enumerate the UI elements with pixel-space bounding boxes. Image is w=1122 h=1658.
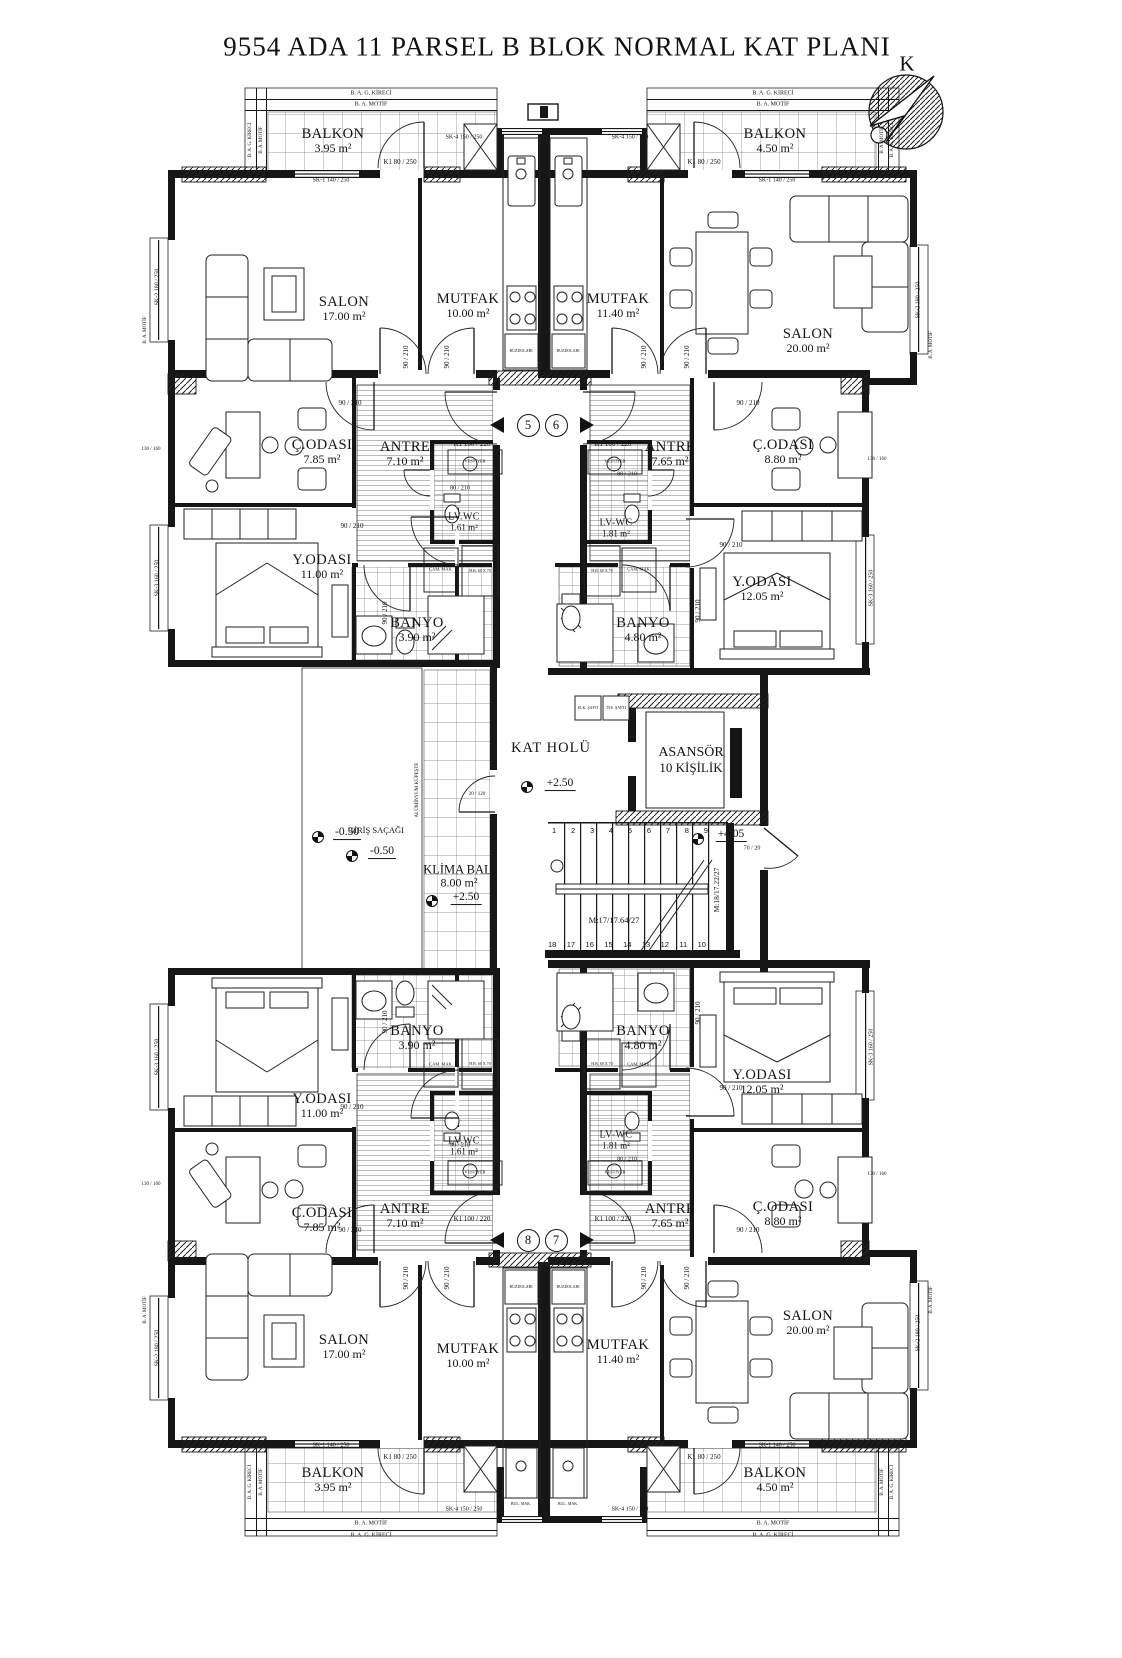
finish-tag-motif: B. A. MOTİF bbox=[929, 1286, 935, 1313]
finish-row-motif: B. A. MOTİF bbox=[757, 1521, 790, 1528]
window-tag-sk1: SK-1 140 / 250 bbox=[759, 178, 796, 185]
door-tag-wc: 80 / 210 bbox=[617, 472, 637, 479]
finish-row-kireci: B. A. G. KİRECİ bbox=[752, 1533, 793, 1540]
door-tag: 90 / 210 bbox=[444, 346, 452, 369]
window-tag-sk3: SK-3 160 / 250 bbox=[155, 560, 162, 597]
door-tag: 90 / 210 bbox=[720, 542, 743, 550]
room-label-salon-bl: SALON17.00 m² bbox=[319, 1332, 369, 1362]
room-label-balkon-tl: BALKON3.95 m² bbox=[302, 126, 365, 156]
door-tag: 90 / 210 bbox=[641, 346, 649, 369]
room-label-banyo-tl: BANYO3.90 m² bbox=[390, 615, 444, 645]
tes-shaft-label: TES. ŞAFTI bbox=[606, 706, 626, 710]
stair-number: 5 bbox=[628, 826, 632, 835]
finish-tag-kireci: B. A. G. KİRECİ bbox=[248, 1465, 254, 1499]
vestiyer-tag: VESTİYER bbox=[464, 460, 485, 465]
stair-number: 13 bbox=[642, 940, 650, 949]
north-label: K bbox=[899, 52, 914, 77]
window-tag-sk1: SK-1 140 / 250 bbox=[313, 178, 350, 185]
unit-number-7: 7 bbox=[545, 1229, 568, 1252]
vestiyer-tag: VESTİYER bbox=[464, 1171, 485, 1176]
unit-arrow-left-top bbox=[490, 417, 504, 433]
door-tag-wc: 80 / 210 bbox=[450, 486, 470, 493]
finish-tag-kireci: B. A. G. KİRECİ bbox=[890, 123, 896, 157]
window-tag-sk3: SK-3 160 / 250 bbox=[869, 1029, 876, 1066]
entry-door-tag: K1 100 / 220 bbox=[454, 1216, 491, 1224]
room-label-banyo-br: BANYO4.80 m² bbox=[616, 1023, 670, 1053]
entry-door-tag: K1 100 / 220 bbox=[595, 441, 632, 449]
room-label-lvwc-br: LV-WC1.81 m² bbox=[600, 1129, 633, 1150]
sill-dim: 130 / 160 bbox=[142, 447, 161, 453]
finish-row-motif: B. A. MOTİF bbox=[757, 102, 790, 109]
hb-tag: H.B. 60 X 70 bbox=[587, 1062, 617, 1066]
window-tag-sk4: SK-4 150 / 250 bbox=[446, 135, 483, 142]
stair-number: 17 bbox=[567, 940, 575, 949]
floor-plan-sheet: 9554 ADA 11 PARSEL B BLOK NORMAL KAT PLA… bbox=[0, 0, 1122, 1658]
vestiyer-tag: VESTİYER bbox=[604, 1171, 625, 1176]
door-tag: 90 / 210 bbox=[737, 400, 760, 408]
hb-tag: H.B. 60 X 70 bbox=[465, 1062, 495, 1066]
level-giris-2: -0.50 bbox=[368, 845, 396, 859]
level-klima: +2.50 bbox=[451, 891, 482, 905]
stair-number: 14 bbox=[623, 940, 631, 949]
level-hall: +2.50 bbox=[545, 777, 576, 791]
camasir-makinesi-tag: ÇAM. MAK. bbox=[429, 568, 453, 573]
room-label-banyo-tr: BANYO4.80 m² bbox=[616, 615, 670, 645]
finish-tag-motif: B. A. MOTİF bbox=[880, 126, 886, 153]
door-tag: 90 / 210 bbox=[382, 602, 390, 625]
finish-tag-motif: B. A. MOTİF bbox=[143, 316, 149, 343]
sill-dim: 130 / 160 bbox=[142, 1182, 161, 1188]
finish-row-motif: B. A. MOTİF bbox=[355, 1521, 388, 1528]
window-tag-sk3: SK-3 160 / 250 bbox=[869, 570, 876, 607]
room-label-mutfak-tl: MUTFAK10.00 m² bbox=[437, 291, 500, 321]
finish-row-kireci: B. A. G. KİRECİ bbox=[350, 91, 391, 98]
finish-tag-motif: B. A. MOTİF bbox=[929, 331, 935, 358]
room-label-salon-tl: SALON17.00 m² bbox=[319, 294, 369, 324]
balcony-door-tag: K1 80 / 250 bbox=[383, 159, 416, 167]
stair-number: 12 bbox=[661, 940, 669, 949]
room-label-balkon-br: BALKON4.50 m² bbox=[744, 1465, 807, 1495]
vestiyer-tag: VESTİYER bbox=[604, 460, 625, 465]
window-tag-sk4: SK-4 150 / 250 bbox=[446, 1507, 483, 1514]
klima-bal-label: KLİMA BAL.8.00 m² bbox=[423, 862, 495, 889]
window-tag-sk4: SK-4 150 / 250 bbox=[612, 135, 649, 142]
window-tag-sk1: SK-1 140 / 250 bbox=[313, 1443, 350, 1450]
stair-m18-label: M:18/17.22/27 bbox=[713, 868, 721, 913]
door-tag: 90 / 210 bbox=[444, 1267, 452, 1290]
window-tag-sk2: SK-2 180 / 250 bbox=[916, 1315, 923, 1352]
door-tag: 90 / 210 bbox=[339, 400, 362, 408]
door-tag: 90 / 210 bbox=[720, 1085, 743, 1093]
room-label-antre-tl: ANTRE7.10 m² bbox=[380, 439, 430, 469]
stair-number: 3 bbox=[590, 826, 594, 835]
door-tag: 90 / 210 bbox=[684, 346, 692, 369]
room-label-yodasi-tr: Y.ODASI12.05 m² bbox=[732, 574, 791, 604]
door-tag: 90 / 210 bbox=[641, 1267, 649, 1290]
door-tag: 90 / 210 bbox=[382, 1011, 390, 1034]
buzdolabi-tag: BUZDOLABI bbox=[509, 349, 532, 353]
room-label-balkon-tr: BALKON4.50 m² bbox=[744, 126, 807, 156]
door-tag: 90 / 210 bbox=[737, 1227, 760, 1235]
room-label-antre-tr: ANTRE7.65 m² bbox=[645, 439, 695, 469]
stair-number: 16 bbox=[586, 940, 594, 949]
window-tag-sk3: SK-3 160 / 250 bbox=[155, 1039, 162, 1076]
finish-tag-motif: B. A. MOTİF bbox=[259, 126, 265, 153]
bulasik-makinesi-tag: BUL. MAK. bbox=[511, 1502, 531, 1506]
camasir-makinesi-tag: ÇAM. MAK. bbox=[627, 1063, 651, 1068]
window-tag-sk4: SK-4 150 / 250 bbox=[612, 1507, 649, 1514]
stair-number: 10 bbox=[698, 940, 706, 949]
balcony-door-tag: K1 80 / 250 bbox=[687, 1454, 720, 1462]
door-tag: 90 / 210 bbox=[684, 1267, 692, 1290]
buzdolabi-tag: BUZDOLABI bbox=[556, 1285, 579, 1289]
room-label-mutfak-br: MUTFAK11.40 m² bbox=[587, 1337, 650, 1367]
level-landing: +4.05 bbox=[716, 828, 747, 842]
finish-tag-motif: B. A. MOTİF bbox=[259, 1468, 265, 1495]
window-tag-sk2: SK-2 180 / 250 bbox=[155, 269, 162, 306]
balcony-door-tag: K1 80 / 250 bbox=[383, 1454, 416, 1462]
room-label-banyo-bl: BANYO3.90 m² bbox=[390, 1023, 444, 1053]
asansor-label: ASANSÖR10 KİŞİLİK bbox=[658, 745, 723, 775]
hb-tag: H.B. 60 X 70 bbox=[465, 569, 495, 573]
finish-tag-kireci: B. A. G. KİRECİ bbox=[890, 1465, 896, 1499]
entry-door-tag: K1 100 / 220 bbox=[595, 1216, 632, 1224]
stair-number: 7 bbox=[666, 826, 670, 835]
door-tag: 90 / 210 bbox=[695, 600, 703, 623]
door-tag: 90 / 210 bbox=[341, 1104, 364, 1112]
unit-number-6: 6 bbox=[545, 414, 568, 437]
bulasik-makinesi-tag: BUL. MAK. bbox=[558, 1502, 578, 1506]
stair-numbers-top: 123456789 bbox=[552, 826, 708, 835]
buzdolabi-tag: BUZDOLABI bbox=[509, 1285, 532, 1289]
room-label-mutfak-bl: MUTFAK10.00 m² bbox=[437, 1341, 500, 1371]
window-tag-sk1: SK-1 140 / 250 bbox=[759, 1443, 796, 1450]
stair-numbers-bottom: 181716151413121110 bbox=[548, 940, 706, 949]
room-label-salon-tr: SALON20.00 m² bbox=[783, 326, 833, 356]
room-label-antre-br: ANTRE7.65 m² bbox=[645, 1201, 695, 1231]
room-label-codasi-tl: Ç.ODASI7.85 m² bbox=[292, 437, 352, 467]
entry-door-tag: K1 100 / 220 bbox=[454, 441, 491, 449]
stair-dim-label: 70 / 20 bbox=[744, 846, 761, 853]
sill-dim: 130 / 160 bbox=[868, 457, 887, 463]
unit-number-5: 5 bbox=[517, 414, 540, 437]
stair-number: 1 bbox=[552, 826, 556, 835]
room-label-lvwc-tl: LV.WC1.61 m² bbox=[448, 511, 480, 532]
door-tag: 90 / 210 bbox=[341, 523, 364, 531]
camasir-makinesi-tag: ÇAM. MAK. bbox=[429, 1063, 453, 1068]
room-label-salon-br: SALON20.00 m² bbox=[783, 1308, 833, 1338]
window-tag-sk2: SK-2 180 / 250 bbox=[155, 1330, 162, 1367]
sheet-title: 9554 ADA 11 PARSEL B BLOK NORMAL KAT PLA… bbox=[223, 32, 891, 63]
unit-arrow-left-bottom bbox=[490, 1232, 504, 1248]
room-label-balkon-bl: BALKON3.95 m² bbox=[302, 1465, 365, 1495]
room-label-codasi-tr: Ç.ODASI8.80 m² bbox=[753, 437, 813, 467]
room-label-mutfak-tr: MUTFAK11.40 m² bbox=[587, 291, 650, 321]
stair-number: 8 bbox=[685, 826, 689, 835]
stair-number: 6 bbox=[647, 826, 651, 835]
room-label-lvwc-tr: LV-WC1.81 m² bbox=[600, 517, 633, 538]
sill-dim: 130 / 160 bbox=[868, 1172, 887, 1178]
room-label-yodasi-tl: Y.ODASI11.00 m² bbox=[292, 552, 351, 582]
door-tag-wc: 80 / 210 bbox=[617, 1157, 637, 1164]
finish-tag-motif: B. A. MOTİF bbox=[880, 1468, 886, 1495]
railing-note: ALÜMİNYUM KÜPEŞTE bbox=[415, 763, 421, 818]
unit-number-8: 8 bbox=[517, 1229, 540, 1252]
camasir-makinesi-tag: ÇAM. MAK. bbox=[627, 568, 651, 573]
unit-arrow-right-top bbox=[580, 417, 594, 433]
finish-tag-motif: B. A. MOTİF bbox=[143, 1296, 149, 1323]
finish-row-kireci: B. A. G. KİRECİ bbox=[350, 1533, 391, 1540]
balcony-door-tag: K1 80 / 250 bbox=[687, 159, 720, 167]
window-tag-sk2: SK-2 180 / 250 bbox=[916, 282, 923, 319]
stair-number: 4 bbox=[609, 826, 613, 835]
level-giris-1: -0.30 bbox=[333, 826, 361, 840]
room-label-antre-bl: ANTRE7.10 m² bbox=[380, 1201, 430, 1231]
door-tag: 90 / 210 bbox=[695, 1002, 703, 1025]
stair-number: 11 bbox=[679, 940, 687, 949]
door-tag-wc: 80 / 210 bbox=[450, 1143, 470, 1150]
finish-row-motif: B. A. MOTİF bbox=[355, 102, 388, 109]
elk-shaft-label: ELK. ŞAFTI bbox=[578, 706, 599, 710]
finish-row-kireci: B. A. G. KİRECİ bbox=[752, 91, 793, 98]
room-label-codasi-br: Ç.ODASI8.80 m² bbox=[753, 1199, 813, 1229]
buzdolabi-tag: BUZDOLABI bbox=[556, 349, 579, 353]
door-tag: 90 / 210 bbox=[403, 346, 411, 369]
hb-tag: H.B. 60 X 70 bbox=[587, 569, 617, 573]
door-tag: 90 / 210 bbox=[339, 1227, 362, 1235]
stair-number: 9 bbox=[704, 826, 708, 835]
unit-arrow-right-bottom bbox=[580, 1232, 594, 1248]
door-tag: 90 / 210 bbox=[403, 1267, 411, 1290]
finish-tag-kireci: B. A. G. KİRECİ bbox=[248, 123, 254, 157]
stair-m17-label: M:17/17.64/27 bbox=[589, 916, 640, 926]
klima-door-dim: 20 / 120 bbox=[469, 792, 485, 798]
kat-holu-label: KAT HOLÜ bbox=[511, 740, 591, 756]
stair-number: 15 bbox=[604, 940, 612, 949]
stair-number: 18 bbox=[548, 940, 556, 949]
stair-number: 2 bbox=[571, 826, 575, 835]
